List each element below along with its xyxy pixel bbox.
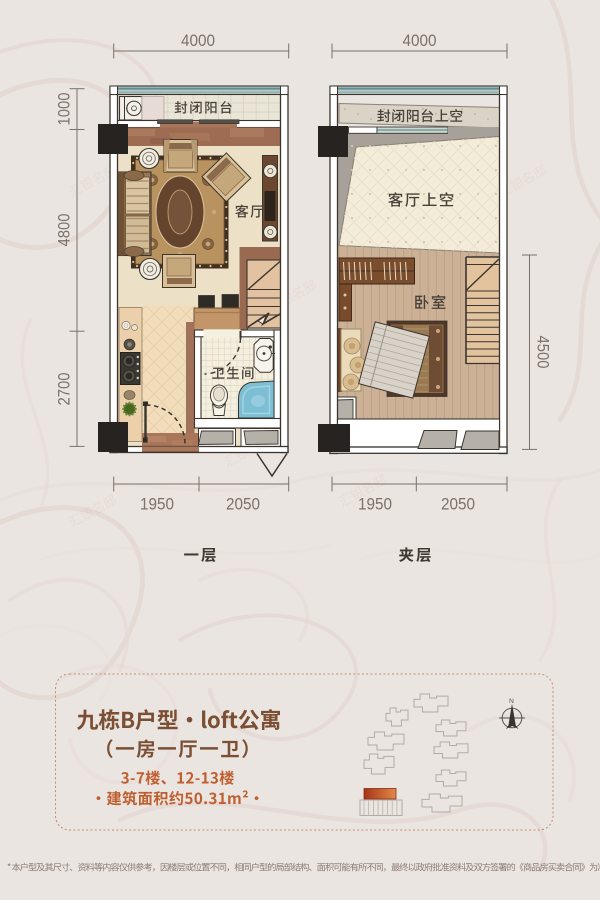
svg-text:2700: 2700 (55, 373, 74, 406)
svg-text:1000: 1000 (55, 93, 74, 126)
svg-text:N: N (509, 698, 514, 705)
svg-text:4500: 4500 (534, 336, 553, 369)
svg-text:2050: 2050 (441, 495, 475, 514)
svg-text:1950: 1950 (358, 495, 392, 514)
svg-text:4000: 4000 (181, 31, 215, 50)
svg-text:4800: 4800 (55, 214, 74, 247)
svg-text:1950: 1950 (140, 495, 174, 514)
svg-text:4000: 4000 (403, 31, 437, 50)
svg-text:2050: 2050 (226, 495, 260, 514)
